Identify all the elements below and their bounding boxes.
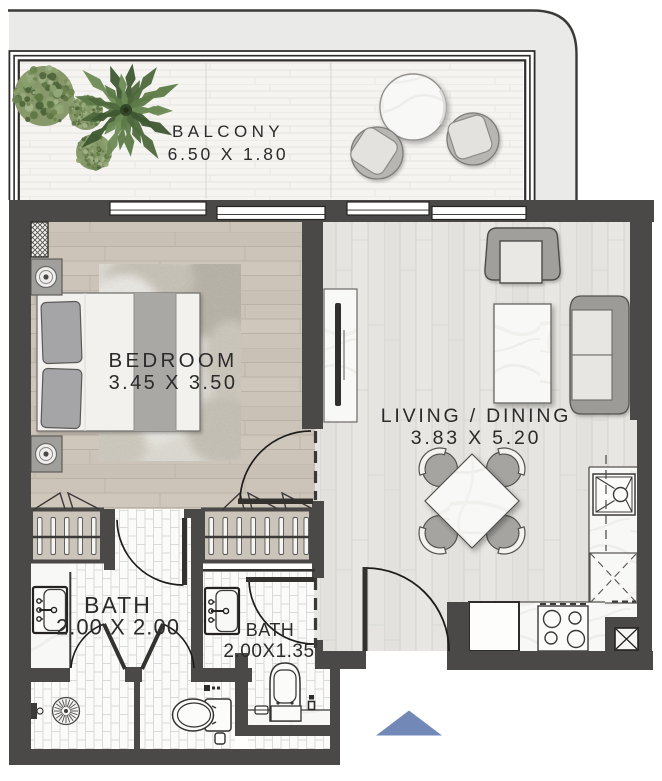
svg-text:BALCONY: BALCONY	[172, 122, 284, 141]
svg-text:LIVING / DINING: LIVING / DINING	[381, 405, 571, 427]
svg-text:3.45 X 3.50: 3.45 X 3.50	[109, 372, 238, 394]
svg-text:3.83 X 5.20: 3.83 X 5.20	[411, 427, 542, 449]
svg-text:2.00 X 2.00: 2.00 X 2.00	[56, 615, 180, 640]
svg-text:BATH: BATH	[246, 620, 294, 640]
svg-text:6.50 X 1.80: 6.50 X 1.80	[168, 144, 289, 164]
svg-text:2.00X1.35: 2.00X1.35	[223, 641, 314, 662]
svg-text:BEDROOM: BEDROOM	[108, 349, 237, 372]
